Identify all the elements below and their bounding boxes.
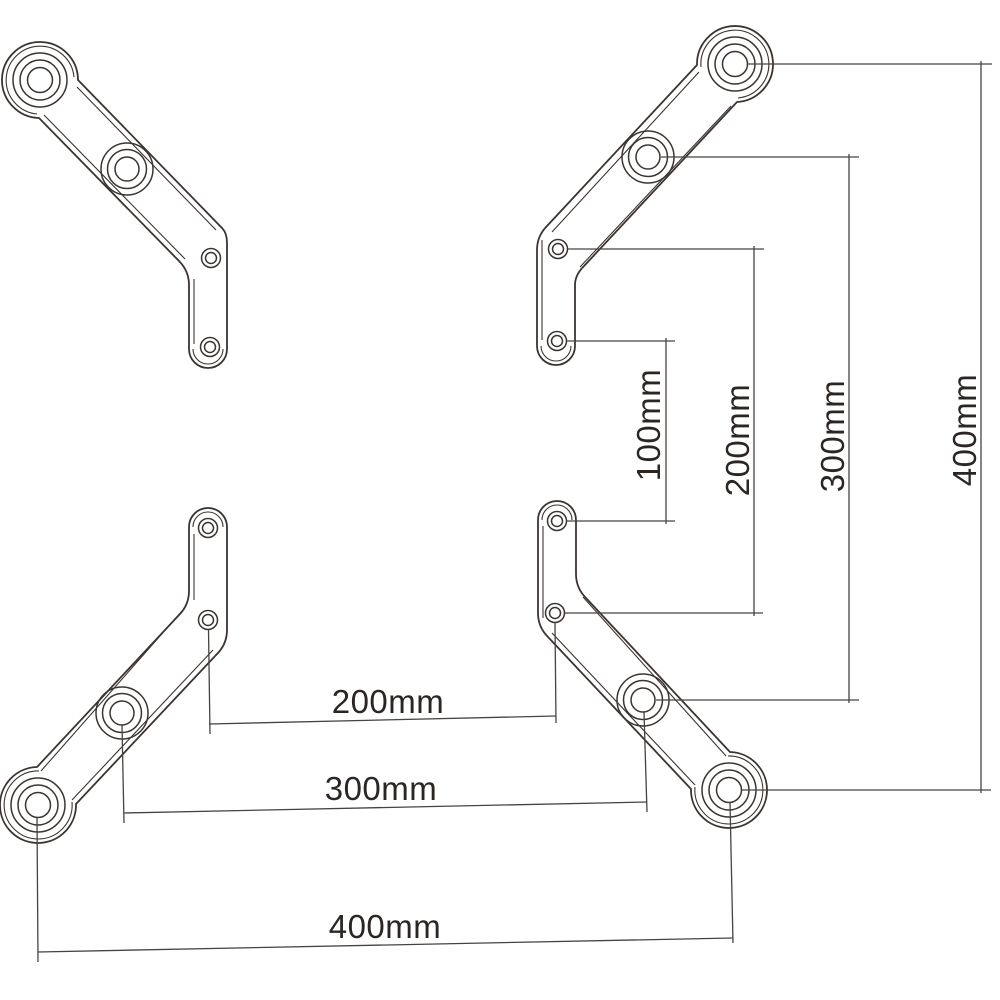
dimension-label-horizontal-300mm: 300mm [325,770,438,807]
dimension-label-vertical-100mm: 100mm [630,369,667,482]
bracket-bottom-left [0,508,227,843]
dimension-label-horizontal-200mm: 200mm [332,683,445,720]
bracket-bottom-right [538,501,767,828]
dimension-label-vertical-200mm: 200mm [719,384,756,497]
technical-drawing-canvas: 100mm 200mm 300mm 400mm 200mm 300mm 400m… [0,0,1000,1000]
bracket-top-right [537,26,773,365]
dimension-label-vertical-300mm: 300mm [814,380,851,493]
dimension-label-horizontal-400mm: 400mm [329,908,442,945]
bracket-top-left-outline [2,42,227,368]
bracket-top-left [2,42,227,368]
dimension-label-vertical-400mm: 400mm [946,374,983,487]
vesa-bracket-diagram: 100mm 200mm 300mm 400mm 200mm 300mm 400m… [0,0,1000,1000]
bracket-bottom-right-outline [538,501,767,828]
